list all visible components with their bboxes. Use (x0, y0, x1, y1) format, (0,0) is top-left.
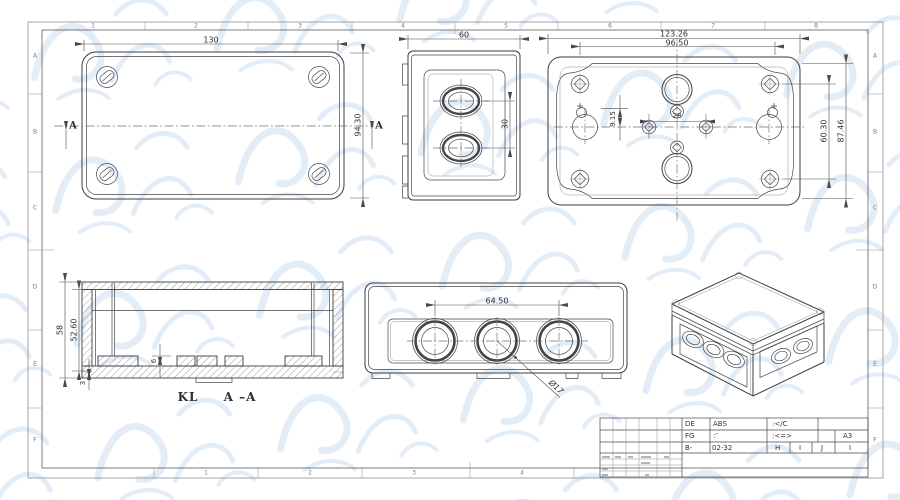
zone-left-a: A (33, 53, 37, 60)
dim-height-94-30: 94.30 (354, 114, 363, 137)
dim-offset-9-15: 9.15 (609, 111, 617, 127)
zone-top-4: 4 (401, 23, 405, 30)
zone-bottom-1: 1 (204, 470, 208, 477)
zone-left-c: C (33, 205, 37, 212)
drawing-sheet: 1 2 3 4 5 6 7 8 1 2 3 4 A B C D E F A B … (0, 0, 900, 500)
title-code-b: B- (685, 444, 692, 452)
revision-text-mark (628, 456, 633, 458)
title-note-2: :<=> (772, 432, 792, 440)
zone-right-c: C (873, 205, 877, 212)
zone-top-8: 8 (814, 23, 818, 30)
section-label-aa: A –A (224, 390, 257, 404)
zone-top-7: 7 (711, 23, 715, 30)
title-zone-j: J (821, 444, 823, 452)
revision-text-mark (602, 474, 608, 476)
zone-bottom-2: 2 (308, 470, 312, 477)
zone-bottom-3: 3 (412, 470, 416, 477)
title-note-1: :</C (772, 420, 787, 428)
section-marker-right: A (375, 121, 383, 132)
dim-span-60-30: 60.30 (820, 120, 829, 143)
zone-bottom-4: 4 (520, 470, 524, 477)
dim-base-3: 3 (79, 381, 87, 385)
title-material-abs: ABS (713, 420, 727, 428)
dim-pitch-28: 28 (673, 112, 682, 120)
section-marker-left: A (69, 121, 77, 132)
dim-span-96-50: 96.50 (666, 38, 689, 47)
zone-top-3: 3 (298, 23, 302, 30)
revision-text-mark (615, 456, 621, 458)
zone-left-f: F (33, 437, 36, 444)
title-zone-i1: I (799, 444, 801, 452)
zone-top-5: 5 (504, 23, 508, 30)
dim-pitch-64-50: 64.50 (486, 297, 509, 306)
revision-text-mark (641, 456, 651, 458)
title-sheet-size: A3 (843, 432, 852, 440)
zone-top-6: 6 (608, 23, 612, 30)
zone-top-2: 2 (194, 23, 198, 30)
title-code-fg: FG (685, 432, 694, 440)
zone-left-e: E (33, 361, 37, 368)
dim-inner-52-60: 52.60 (70, 319, 79, 342)
dim-width-60: 60 (459, 31, 469, 40)
revision-text-mark (645, 474, 649, 476)
zone-top-1: 1 (91, 23, 95, 30)
dim-span-87-46: 87.46 (837, 120, 846, 143)
zone-right-f: F (873, 437, 876, 444)
revision-text-mark (602, 456, 610, 458)
title-code-de: DE (685, 420, 695, 428)
zone-left-d: D (33, 284, 38, 291)
title-value-2: :″ (713, 432, 718, 440)
revision-text-mark (641, 462, 650, 464)
watermark-pattern (0, 0, 900, 500)
dim-pitch-30: 30 (501, 119, 510, 129)
dim-boss-6: 6 (150, 359, 158, 363)
dim-width-130: 130 (203, 36, 218, 45)
dim-height-58: 58 (56, 325, 65, 335)
revision-text-mark (664, 456, 669, 458)
zone-right-e: E (873, 361, 877, 368)
revision-text-mark (602, 468, 608, 470)
zone-right-b: B (873, 129, 877, 136)
section-label-kl: KL (178, 390, 199, 404)
title-zone-h: H (775, 444, 780, 452)
zone-left-b: B (33, 129, 37, 136)
zone-right-a: A (873, 53, 877, 60)
zone-right-d: D (873, 284, 878, 291)
title-zone-i2: I (849, 444, 851, 452)
title-code-02-32: 02-32 (712, 444, 732, 452)
drawing-linework (0, 0, 900, 500)
